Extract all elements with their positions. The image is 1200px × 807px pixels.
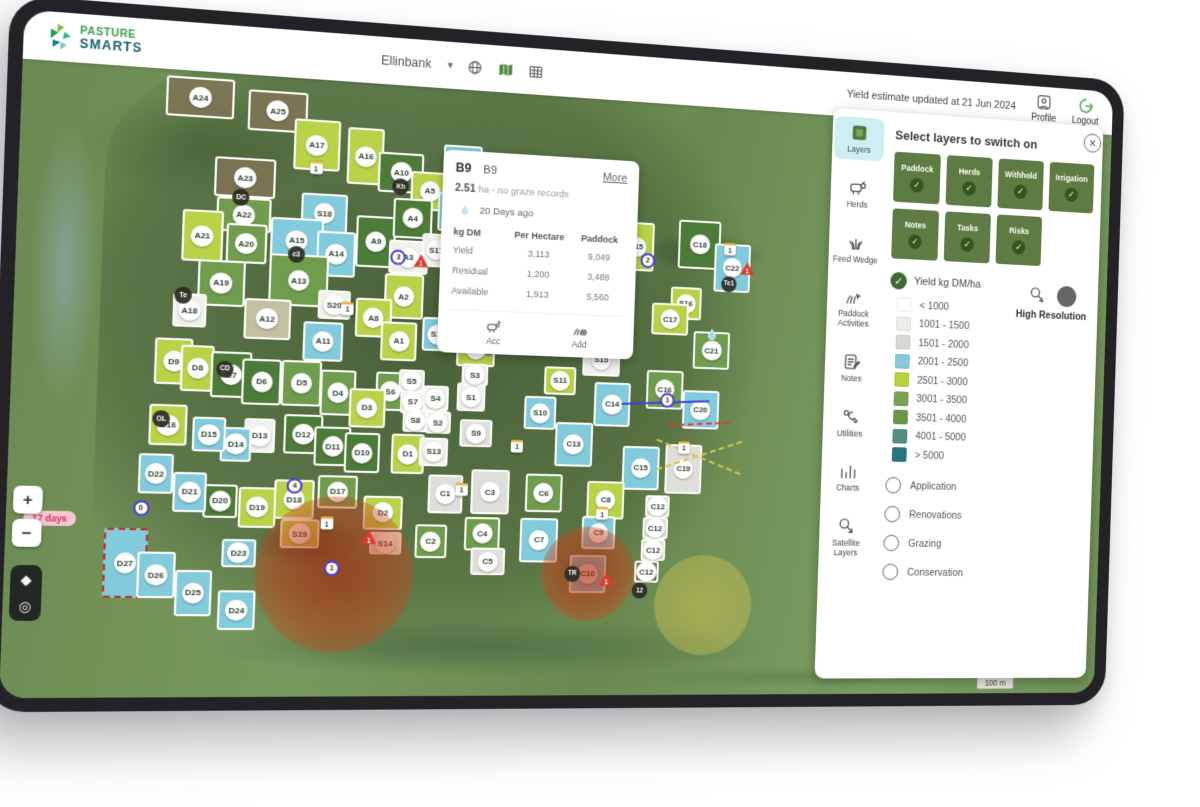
activities-icon — [844, 286, 865, 308]
paddock-label: S9 — [466, 423, 487, 444]
popup-action-acc[interactable]: Acc — [450, 316, 538, 348]
brand-logo: PASTURE SMARTS — [23, 20, 143, 56]
brand-line2: SMARTS — [79, 37, 142, 54]
paddock-cell[interactable]: A11 — [303, 321, 344, 362]
paddock-cell[interactable]: D5 — [281, 360, 323, 407]
paddock-label: C15 — [630, 458, 651, 478]
rail-item-label: Paddock Activities — [828, 309, 878, 330]
legend-swatch — [896, 316, 911, 331]
paddock-cell[interactable]: C12 — [641, 539, 666, 561]
legend-label: < 1000 — [919, 300, 949, 313]
layer-toggle-label: Paddock — [901, 163, 933, 175]
task-badge[interactable]: 1 — [341, 301, 354, 315]
legend-label: 1001 - 1500 — [919, 318, 970, 332]
legend-swatch — [893, 410, 908, 425]
yield-layer-label: Yield kg DM/ha — [914, 276, 981, 291]
rail-item-label: Satellite Layers — [820, 539, 870, 559]
layer-toggle-label: Risks — [1009, 226, 1029, 237]
legend-label: 1501 - 2000 — [918, 337, 969, 351]
layer-toggle-irrigation[interactable]: Irrigation✓ — [1048, 162, 1094, 214]
popup-actions: AccAdd — [450, 309, 623, 351]
paddock-tag-badge[interactable]: 12 — [631, 583, 647, 599]
feed-icon — [845, 231, 866, 253]
legend-swatch — [894, 391, 909, 406]
paddock-label: C12 — [643, 540, 664, 560]
yield-status-text: Yield estimate updated at 21 Jun 2024 — [847, 88, 1016, 112]
satellite-icon — [1027, 284, 1047, 306]
layer-toggle-herds[interactable]: Herds✓ — [946, 155, 993, 207]
task-badge[interactable]: 1 — [320, 516, 333, 530]
paddock-label: D10 — [351, 442, 373, 463]
paddock-tag-badge[interactable]: Kh — [392, 178, 409, 195]
herd-add-icon — [484, 317, 503, 334]
irrigation-drop-icon[interactable] — [705, 327, 719, 341]
paddock-label: C18 — [690, 234, 710, 255]
map-view-icon[interactable] — [495, 58, 516, 80]
paddock-label: D14 — [224, 433, 247, 454]
row-label: Available — [451, 280, 503, 303]
paddock-cell[interactable]: C17 — [651, 302, 689, 336]
paddock-label: A17 — [306, 134, 329, 156]
row-paddock: 3,488 — [572, 266, 624, 288]
legend-row: 4001 - 5000 — [892, 428, 1088, 448]
zoom-out-button[interactable]: − — [11, 519, 41, 547]
paddock-cell[interactable]: C4 — [464, 517, 500, 551]
paddock-cell[interactable]: A12 — [243, 298, 291, 340]
check-icon: ✓ — [960, 237, 974, 252]
paddock-label: C14 — [602, 394, 623, 415]
high-resolution-knob — [1057, 286, 1077, 308]
paddock-label: C3 — [480, 482, 501, 503]
paddock-label: C2 — [420, 531, 441, 552]
paddock-cell[interactable]: S10 — [524, 396, 557, 430]
legend-label: 2001 - 2500 — [918, 356, 969, 369]
paddock-label: C7 — [529, 530, 550, 550]
paddock-cell[interactable]: S1 — [456, 383, 486, 412]
paddock-label: D13 — [248, 425, 271, 446]
paddock-label: D27 — [113, 552, 137, 573]
paddock-cell[interactable]: D21 — [172, 471, 208, 512]
paddock-label: D3 — [356, 397, 378, 418]
paddock-label: S2 — [427, 412, 448, 433]
legend-swatch — [897, 297, 912, 312]
paddock-label: A21 — [191, 225, 214, 247]
zoom-in-button[interactable]: + — [13, 485, 43, 513]
paddock-label: A11 — [312, 331, 334, 352]
paddock-label: A2 — [393, 286, 414, 307]
paddock-label: C4 — [472, 523, 493, 544]
close-icon[interactable]: ✕ — [1084, 133, 1102, 153]
task-badge[interactable]: 1 — [678, 441, 690, 454]
layer-toggle-label: Notes — [905, 220, 927, 231]
logout-button[interactable]: Logout — [1072, 96, 1099, 128]
paddock-cell[interactable]: S3 — [462, 363, 488, 386]
legend-label: 4001 - 5000 — [915, 430, 966, 443]
radio-conservation[interactable]: Conservation — [882, 564, 1084, 582]
check-icon: ✓ — [1065, 187, 1079, 202]
paddock-label: D20 — [208, 490, 231, 511]
paddock-cell[interactable]: S5 — [398, 369, 425, 392]
rail-item-herds[interactable]: Herds — [832, 171, 883, 216]
charts-icon — [838, 461, 859, 483]
layer-toggle-label: Tasks — [957, 223, 978, 234]
legend-row: 2001 - 2500 — [895, 353, 1091, 375]
paddock-label: S5 — [401, 371, 422, 392]
paddock-label: D22 — [144, 463, 167, 485]
paddock-label: C22 — [722, 258, 742, 279]
check-icon: ✓ — [910, 178, 924, 193]
paddock-label: S3 — [464, 364, 485, 385]
paddock-label: C6 — [533, 483, 554, 504]
paddock-cell[interactable]: C2 — [414, 524, 447, 558]
paddock-label: S4 — [425, 388, 446, 409]
rail-item-charts[interactable]: Charts — [822, 455, 873, 499]
app-screen: PASTURE SMARTS Ellinbank ▼ — [0, 9, 1113, 698]
legend-swatch — [892, 428, 907, 443]
high-resolution-toggle[interactable]: High Resolution — [1013, 284, 1089, 323]
legend-row: 1501 - 2000 — [895, 335, 1091, 357]
paddock-label: D12 — [292, 424, 315, 445]
paddock-label: D5 — [291, 372, 313, 393]
red-risk-zone[interactable] — [539, 526, 635, 621]
check-icon: ✓ — [1012, 240, 1026, 255]
profile-button[interactable]: Profile — [1031, 93, 1057, 125]
task-badge[interactable]: 1 — [596, 507, 608, 520]
rail-item-feed-wedge[interactable]: Feed Wedge — [830, 226, 881, 271]
popup-more-link[interactable]: More — [602, 171, 627, 184]
legend-row: 2501 - 3000 — [894, 372, 1090, 393]
popup-paddock-name: B9 — [483, 164, 497, 177]
paddock-label: D6 — [250, 371, 272, 393]
panel-title: Select layers to switch on — [895, 128, 1098, 156]
paddock-label: C1 — [435, 484, 456, 505]
paddock-label: D25 — [181, 582, 204, 603]
satellite-icon — [836, 516, 857, 538]
check-icon: ✓ — [908, 234, 922, 249]
radio-label: Application — [910, 480, 957, 493]
herds-icon — [847, 176, 868, 198]
layer-toggle-label: Withhold — [1005, 169, 1037, 180]
paddock-label: S11 — [550, 370, 571, 391]
paddock-label: A24 — [189, 86, 212, 108]
paddock-label: A20 — [235, 233, 258, 255]
row-label: Yield — [452, 240, 504, 263]
paddock-cell[interactable]: S11 — [544, 366, 576, 395]
profile-icon — [1034, 93, 1054, 113]
globe-icon[interactable] — [465, 56, 486, 78]
farm-selector-value: Ellinbank — [381, 53, 432, 71]
popup-paddock-code: B9 — [455, 160, 471, 175]
rail-item-label: Herds — [847, 200, 868, 211]
rail-item-layers[interactable]: Layers — [834, 116, 885, 162]
paddock-cell[interactable]: C3 — [470, 470, 510, 515]
herd-marker[interactable]: 0 — [132, 500, 149, 516]
paddock-label: D4 — [327, 382, 349, 403]
paddock-label: D11 — [322, 436, 344, 457]
paddock-cell[interactable]: D24 — [217, 590, 256, 630]
paddock-mosaic: A24A25A17A16A10A5A7A6A23A22A21A20S18A15A… — [94, 72, 758, 654]
check-icon: ✓ — [1014, 184, 1028, 199]
legend-swatch — [894, 372, 909, 387]
paddock-label: A13 — [287, 270, 310, 292]
layers-icon — [849, 122, 870, 145]
logout-icon — [1076, 96, 1096, 116]
paddock-label: A25 — [267, 100, 290, 122]
brand-logo-icon — [46, 22, 74, 52]
paddock-popup: B9 B9 More 2.51 ha - no graze records 20… — [437, 149, 640, 359]
paddock-label: D15 — [197, 424, 220, 446]
paddock-cell[interactable]: D22 — [138, 453, 174, 494]
paddock-cell[interactable]: S4 — [422, 386, 449, 412]
paddock-label: C5 — [477, 551, 498, 572]
chevron-down-icon: ▼ — [446, 60, 455, 71]
paddock-label: S1 — [460, 387, 481, 408]
grid-view-icon[interactable] — [525, 61, 546, 83]
paddock-label: D1 — [397, 444, 418, 465]
paddock-cell[interactable]: D15 — [191, 417, 226, 452]
paddock-cell[interactable]: A20 — [225, 223, 267, 265]
paddock-cell[interactable]: D26 — [136, 552, 176, 599]
paddock-cell[interactable]: C12 — [645, 495, 670, 517]
rail-item-satellite-layers[interactable]: Satellite Layers — [820, 510, 872, 563]
popup-last-grazed: 20 Days ago — [479, 205, 533, 219]
paddock-cell[interactable]: D23 — [221, 538, 256, 567]
legend-label: 3501 - 4000 — [916, 412, 967, 425]
paddock-label: S10 — [530, 403, 551, 424]
rail-item-paddock-activities[interactable]: Paddock Activities — [828, 281, 879, 335]
row-label: Residual — [452, 260, 504, 283]
task-badge[interactable]: 1 — [724, 242, 736, 255]
radio-label: Grazing — [908, 537, 942, 549]
check-icon: ✓ — [962, 181, 976, 196]
activity-radio-group: ApplicationRenovationsGrazingConservatio… — [882, 477, 1086, 582]
paddock-label: A19 — [210, 272, 233, 294]
paddock-label: D21 — [178, 481, 201, 502]
popup-area-value: 2.51 — [455, 182, 476, 195]
radio-circle-icon — [885, 477, 901, 494]
paddock-cell[interactable]: S9 — [460, 419, 493, 448]
paddock-cell[interactable]: C5 — [470, 548, 506, 576]
legend-row: 3001 - 3500 — [894, 391, 1090, 412]
task-badge[interactable]: 1 — [309, 161, 322, 175]
rail-item-label: Layers — [847, 145, 871, 156]
radio-grazing[interactable]: Grazing — [883, 535, 1085, 554]
legend-label: > 5000 — [915, 449, 945, 461]
task-badge[interactable]: 1 — [455, 482, 468, 495]
paddock-cell[interactable]: A21 — [181, 209, 224, 263]
farm-selector[interactable]: Ellinbank ▼ — [381, 53, 455, 73]
radio-application[interactable]: Application — [885, 477, 1087, 498]
radio-circle-icon — [883, 535, 899, 552]
paddock-label: S8 — [405, 410, 426, 431]
paddock-cell[interactable]: C15 — [622, 446, 660, 490]
check-icon: ✓ — [890, 272, 907, 290]
paddock-cell[interactable]: D25 — [173, 570, 212, 616]
layer-toggle-tasks[interactable]: Tasks✓ — [944, 211, 991, 263]
legend-swatch — [895, 353, 910, 368]
map-tools: ◆ ◎ — [9, 565, 43, 621]
popup-action-label: Acc — [486, 336, 501, 347]
paddock-cell[interactable]: D20 — [202, 483, 237, 518]
layer-toggle-label: Herds — [959, 166, 981, 177]
popup-area-line: 2.51 ha - no graze records — [455, 182, 627, 204]
layer-toggle-grid: Paddock✓Herds✓Withhold✓Irrigation✓Notes✓… — [891, 152, 1097, 269]
layer-toggle-withhold[interactable]: Withhold✓ — [997, 158, 1044, 210]
yellow-risk-zone[interactable] — [653, 554, 753, 654]
paddock-label: D19 — [246, 497, 269, 518]
paddock-cell[interactable]: D10 — [343, 433, 380, 473]
paddock-label: A16 — [355, 146, 377, 168]
paddock-label: D8 — [186, 357, 208, 379]
yield-legend: < 10001001 - 15001501 - 20002001 - 25002… — [892, 297, 1093, 466]
popup-table-body: Yield3,1139,049Residual1,2003,488Availab… — [451, 240, 625, 309]
popup-action-label: Add — [572, 339, 587, 350]
rail-item-label: Charts — [836, 484, 859, 494]
radio-circle-icon — [882, 564, 898, 581]
rail-item-label: Utilities — [837, 429, 863, 439]
rail-item-notes[interactable]: Notes — [826, 345, 877, 389]
row-paddock: 9,049 — [573, 246, 625, 269]
radio-label: Renovations — [909, 509, 962, 521]
grass-add-icon — [571, 321, 589, 338]
map-scale: 100 m — [977, 676, 1014, 689]
paddock-label: C12 — [636, 562, 657, 582]
locate-icon[interactable]: ◎ — [18, 599, 31, 613]
paddock-label: A9 — [365, 231, 387, 253]
paddock-cell[interactable]: S13 — [419, 437, 449, 466]
tablet-device: PASTURE SMARTS Ellinbank ▼ — [0, 0, 1125, 712]
paddock-cell[interactable]: C6 — [524, 474, 563, 513]
paddock-label: D26 — [144, 564, 167, 585]
notes-icon — [841, 351, 862, 373]
paddock-label: A23 — [234, 167, 257, 189]
paddock-cell[interactable]: A24 — [166, 75, 236, 120]
paddock-label: C12 — [647, 496, 668, 516]
layer-toggle-paddock[interactable]: Paddock✓ — [893, 152, 941, 205]
paddock-label: S13 — [423, 441, 444, 462]
paddock-label: C21 — [701, 340, 721, 360]
rail-item-label: Feed Wedge — [833, 254, 878, 266]
paddock-cell[interactable]: C13 — [554, 422, 593, 467]
popup-area-rest: ha - no graze records — [478, 184, 569, 200]
paddock-label: A4 — [402, 208, 423, 230]
row-paddock: 5,560 — [572, 286, 624, 308]
paddock-cell[interactable]: D19 — [238, 487, 276, 528]
paddock-label: A12 — [256, 308, 279, 330]
radio-circle-icon — [884, 506, 900, 523]
legend-swatch — [892, 447, 907, 462]
legend-label: 3001 - 3500 — [916, 393, 967, 406]
radio-label: Conservation — [907, 566, 963, 578]
layer-toggle-risks[interactable]: Risks✓ — [996, 214, 1043, 266]
paddock-label: D23 — [227, 542, 250, 563]
paddock-label: C12 — [645, 518, 666, 538]
utilities-icon — [840, 406, 861, 428]
radio-renovations[interactable]: Renovations — [884, 506, 1086, 526]
legend-row: 3501 - 4000 — [893, 410, 1089, 430]
task-badge[interactable]: 1 — [511, 439, 523, 452]
paddock-cell[interactable]: D6 — [241, 358, 283, 405]
water-drop-icon — [458, 202, 472, 218]
legend-label: 2501 - 3000 — [917, 374, 968, 387]
legend-swatch — [895, 335, 910, 350]
rail-item-utilities[interactable]: Utilities — [824, 400, 875, 444]
layer-toggle-label: Irrigation — [1056, 173, 1088, 184]
paddock-cell[interactable]: S2 — [425, 411, 452, 434]
layer-toggle-notes[interactable]: Notes✓ — [891, 208, 939, 260]
row-per-hectare: 1,913 — [502, 283, 572, 306]
paddock-label: C17 — [660, 309, 681, 330]
layers-panel: LayersHerdsFeed WedgePaddock ActivitiesN… — [814, 108, 1103, 679]
rail-item-label: Notes — [841, 374, 862, 384]
paddock-cell[interactable]: D3 — [348, 388, 385, 429]
paddock-cell[interactable]: C12 — [634, 561, 659, 583]
paddock-label: D24 — [225, 600, 248, 621]
map-layers-icon[interactable]: ◆ — [20, 573, 32, 587]
popup-yield-table: kg DM Per Hectare Paddock Yield3,1139,04… — [451, 223, 625, 308]
popup-action-add[interactable]: Add — [536, 320, 622, 351]
paddock-label: C13 — [563, 434, 584, 455]
paddock-cell[interactable]: C12 — [643, 517, 668, 539]
paddock-label: A1 — [388, 331, 409, 352]
paddock-cell[interactable]: A1 — [380, 321, 417, 362]
legend-row: > 5000 — [892, 447, 1088, 466]
